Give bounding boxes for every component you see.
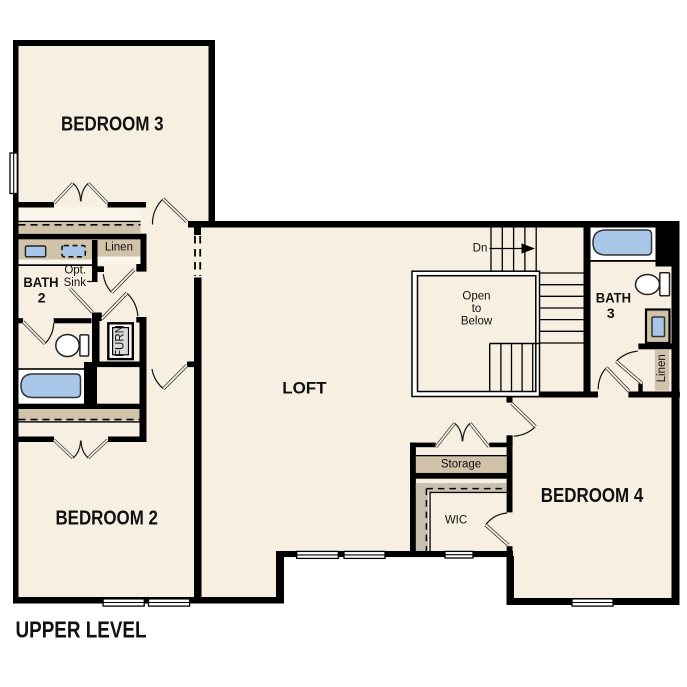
svg-text:Dn: Dn [473, 242, 488, 254]
svg-text:Storage: Storage [441, 459, 481, 471]
svg-text:Below: Below [461, 316, 493, 328]
svg-text:BEDROOM 3: BEDROOM 3 [61, 114, 164, 136]
svg-text:to: to [472, 303, 482, 315]
svg-text:2: 2 [38, 290, 46, 306]
svg-text:BEDROOM 4: BEDROOM 4 [541, 485, 644, 507]
svg-text:Sink: Sink [64, 277, 87, 289]
svg-text:LOFT: LOFT [282, 379, 327, 398]
svg-text:WIC: WIC [445, 515, 467, 527]
svg-text:UPPER LEVEL: UPPER LEVEL [16, 617, 147, 643]
svg-text:Linen: Linen [656, 354, 668, 382]
svg-text:Opt.: Opt. [64, 265, 86, 277]
svg-text:BATH: BATH [23, 274, 58, 290]
svg-text:FURN: FURN [115, 325, 127, 357]
svg-text:3: 3 [607, 305, 615, 321]
svg-text:Open: Open [462, 290, 490, 302]
svg-text:Linen: Linen [105, 242, 133, 254]
svg-text:BEDROOM 2: BEDROOM 2 [55, 508, 158, 530]
svg-text:BATH: BATH [596, 290, 631, 306]
